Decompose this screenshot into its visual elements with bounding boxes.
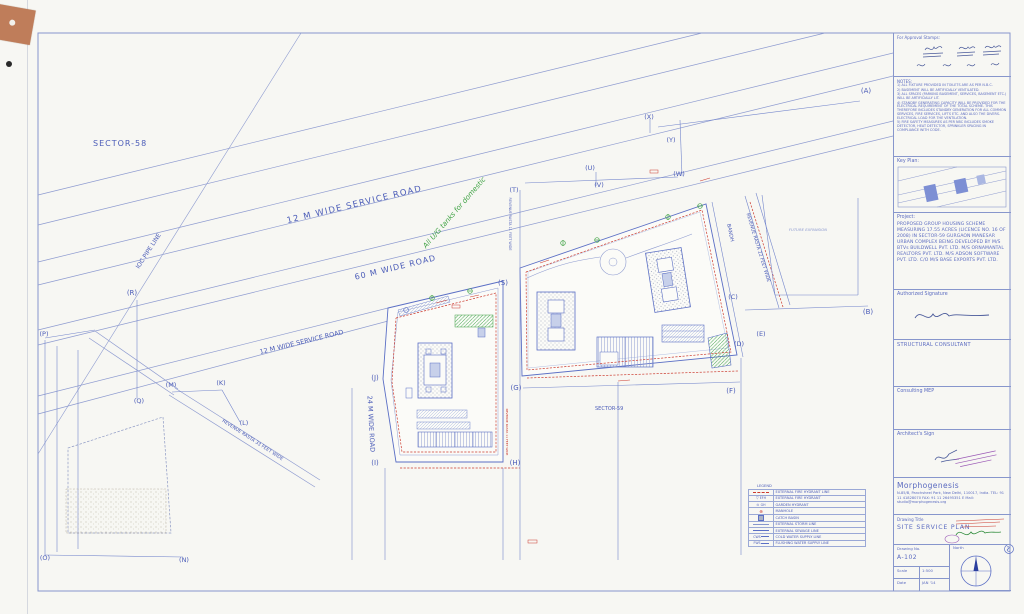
legend-title: LEGEND — [757, 484, 866, 488]
north-compass-icon — [953, 552, 1009, 588]
storm-line-icon — [753, 524, 769, 525]
svg-text:(G): (G) — [511, 384, 522, 392]
north-label: North — [953, 545, 964, 550]
fws-line-icon — [761, 543, 769, 544]
date-value: JAN '14 — [922, 581, 936, 586]
svg-text:(M): (M) — [166, 381, 177, 389]
cws-line-icon — [761, 536, 769, 537]
svg-text:(X): (X) — [644, 113, 654, 121]
scanned-site-plan-sheet: { "title_block": { "approval_label": "Fo… — [0, 0, 1024, 614]
svg-text:(P): (P) — [40, 330, 49, 338]
project-description: PROPOSED GROUP HOUSING SCHEME MEASURING … — [897, 222, 1008, 264]
drawing-no-label: Drawing No. — [897, 547, 946, 552]
firm-address: N-85/B, Panchsheel Park, New Delhi, 1100… — [897, 491, 1008, 504]
scale-row: Scale 1:500 — [894, 567, 949, 579]
svg-text:(R): (R) — [127, 289, 138, 297]
fire-hydrant-line-icon — [753, 492, 769, 493]
divider — [919, 567, 920, 578]
scale-value: 1:500 — [922, 569, 933, 574]
label-revenue-rasta-33: REVENUE RASTA 33 FEET WIDE — [221, 418, 285, 462]
drawing-title-stamps — [942, 517, 1010, 544]
label-revenue-rasta-11-red: REVENUE RASTA 11 FEET WIDE — [505, 409, 509, 456]
right-plot — [520, 204, 737, 376]
firm-name: Morphogenesis — [897, 481, 1008, 490]
drawing-no: A-102 — [897, 554, 946, 562]
svg-text:(Q): (Q) — [134, 397, 144, 405]
site-plan-drawing: SECTOR-58 SECTOR-59 12 M WIDE SERVICE RO… — [0, 0, 1024, 614]
architect-sign-stamp — [897, 438, 1007, 472]
svg-text:(O): (O) — [40, 554, 50, 562]
structural-consultant-label: STRUCTURAL CONSULTANT — [897, 342, 1008, 348]
svg-text:(V): (V) — [594, 181, 604, 189]
notes-section: NOTES: 1) ALL FIXTURE PROVIDED IN TOILET… — [894, 77, 1011, 157]
north-cell: North — [949, 545, 1011, 591]
project-section: Project: PROPOSED GROUP HOUSING SCHEME M… — [894, 213, 1011, 290]
divider — [919, 579, 920, 591]
svg-text:(D): (D) — [734, 340, 744, 348]
authorized-signature-section: Authorized Signature — [894, 290, 1011, 340]
label-ioc-pipe-line: IOC PIPE LINE — [135, 232, 163, 270]
legend-row: FWSFLUSHING WATER SUPPLY LINE — [749, 540, 866, 546]
svg-text:(I): (I) — [371, 459, 379, 467]
label-future-expansion: FUTURE EXPANSION — [789, 227, 827, 232]
label-revenue-rasta-11: REVENUE RASTA 11 FEET WIDE — [508, 198, 512, 251]
label-24m-road: 24 M WIDE ROAD — [366, 395, 377, 452]
manhole-icon: ⊕ — [759, 509, 763, 514]
svg-text:(T): (T) — [509, 186, 518, 194]
left-plot — [383, 281, 503, 462]
note-item: 3) ALL SPACES (PARKING BASEMENT, SERVICE… — [897, 93, 1008, 101]
svg-text:(K): (K) — [216, 379, 225, 387]
svg-text:(A): (A) — [861, 87, 872, 95]
structural-consultant-section: STRUCTURAL CONSULTANT — [894, 340, 1011, 387]
approval-signature-scribbles — [897, 40, 1007, 72]
legend: LEGEND EXTERNAL FIRE HYDRANT LINE ▽ EFHE… — [748, 484, 866, 547]
catch-basin-icon — [758, 515, 764, 521]
legend-table: EXTERNAL FIRE HYDRANT LINE ▽ EFHEXTERNAL… — [748, 489, 866, 547]
authorized-signature-scribble — [897, 298, 1007, 328]
note-item: 4) STANDBY GENERATING CAPACITY WILL BE P… — [897, 102, 1008, 121]
handwritten-green-note: All U/G tanks for domestic — [421, 175, 488, 250]
svg-text:(U): (U) — [585, 164, 595, 172]
architects-sign-section: Architect's Sign — [894, 430, 1011, 478]
label-revenue-rasta-22: REVENUE RASTA 22 FEET WIDE — [745, 213, 772, 283]
svg-text:(L): (L) — [240, 419, 249, 427]
project-heading: Project: — [897, 215, 1008, 221]
label-service-road-mid: 12 M WIDE SERVICE ROAD — [259, 328, 344, 356]
drawing-title-section: Drawing Title SITE SERVICE PLAN — [894, 515, 1011, 545]
label-sector-59: SECTOR-59 — [595, 406, 623, 412]
svg-text:(W): (W) — [673, 170, 685, 178]
key-plan-map — [897, 165, 1007, 209]
ioc-pipe-line — [38, 33, 301, 454]
svg-text:(F): (F) — [726, 387, 736, 395]
svg-text:(C): (C) — [728, 293, 738, 301]
approval-stamps-section: For Approval Stamps: — [894, 33, 1011, 77]
firm-section: Morphogenesis N-85/B, Panchsheel Park, N… — [894, 478, 1011, 515]
sewage-line-icon — [753, 530, 769, 531]
label-service-road-top: 12 M WIDE SERVICE ROAD — [286, 184, 423, 226]
svg-text:(N): (N) — [179, 556, 189, 564]
title-block: For Approval Stamps: NOTES: 1) ALL FIXTU… — [893, 33, 1010, 591]
svg-text:(Y): (Y) — [666, 136, 675, 144]
legend-row: CATCH BASIN — [749, 514, 866, 521]
label-bandh: BANDH — [725, 223, 735, 242]
garden-hydrant-icon: ⊙ — [757, 503, 760, 507]
svg-text:(H): (H) — [510, 459, 521, 467]
label-sector-58: SECTOR-58 — [93, 139, 147, 148]
svg-text:(J): (J) — [371, 374, 379, 382]
consulting-mep-label: Consulting MEP — [897, 389, 1008, 395]
consulting-mep-section: Consulting MEP — [894, 387, 1011, 430]
date-label: Date — [897, 580, 906, 585]
note-item: 5) FIRE SAFETY MEASURES AS PER NBC INCLU… — [897, 121, 1008, 132]
svg-text:(S): (S) — [498, 279, 508, 287]
west-plot-fill-area — [66, 489, 166, 533]
external-fire-hydrant-icon: ▽ — [756, 496, 759, 500]
drawing-no-section: Drawing No. A-102 — [894, 545, 949, 567]
key-plan-section: Key Plan: — [894, 157, 1011, 213]
svg-text:(E): (E) — [756, 330, 765, 338]
svg-text:(B): (B) — [863, 308, 874, 316]
date-row: Date JAN '14 — [894, 579, 949, 591]
scale-label: Scale — [897, 568, 907, 573]
